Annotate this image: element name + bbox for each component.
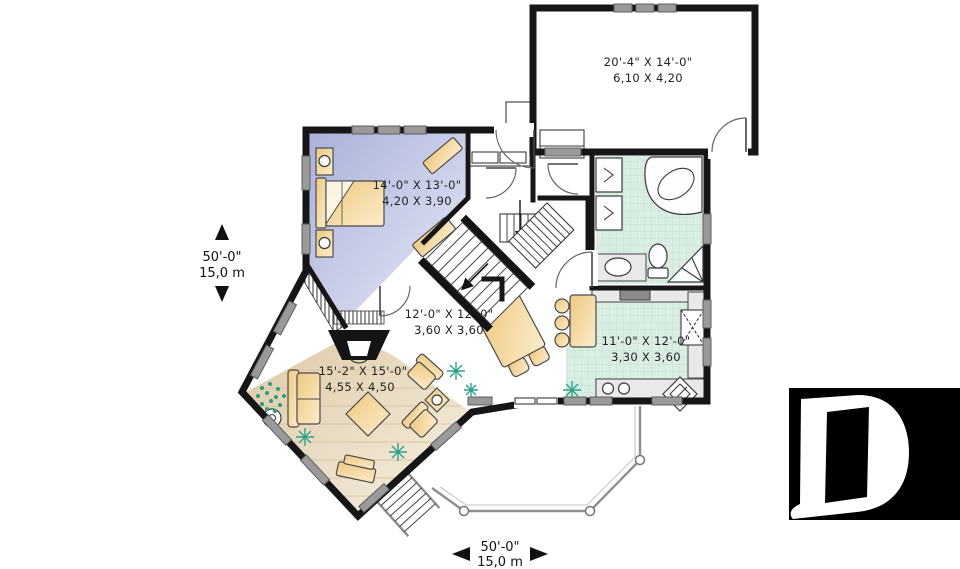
garage-dim-meters: 6,10 X 4,20	[613, 71, 683, 85]
dryer	[596, 196, 622, 230]
living-dim-feet: 15'-2" X 15'-0"	[319, 364, 408, 378]
sink	[605, 258, 631, 276]
stove-burner	[603, 383, 614, 394]
dining-dim-meters: 3,60 X 3,60	[414, 323, 484, 337]
arrow-up-icon	[215, 224, 229, 240]
eating-bar	[570, 295, 596, 347]
toilet	[648, 244, 668, 278]
horizontal-dim-meters: 15,0 m	[477, 555, 523, 569]
stool	[555, 316, 569, 330]
living-dim-meters: 4,55 X 4,50	[325, 380, 395, 394]
builder-logo	[789, 388, 960, 520]
dining-dim-feet: 12'-0" X 12'-0"	[405, 307, 494, 321]
kitchen-dim-meters: 3,30 X 3,60	[611, 350, 681, 364]
horizontal-dim-feet: 50'-0"	[480, 540, 519, 555]
vertical-dim-feet: 50'-0"	[202, 250, 241, 265]
floor-plan-canvas: 20'-4" X 14'-0" 6,10 X 4,20 14'-0" X 13'…	[0, 0, 960, 569]
stove-burner	[619, 383, 630, 394]
arrow-down-icon	[215, 286, 229, 302]
dimension-horizontal: 50'-0" 15,0 m	[452, 540, 548, 569]
dimension-vertical: 50'-0" 15,0 m	[199, 224, 245, 302]
bedroom-dim-meters: 4,20 X 3,90	[382, 194, 452, 208]
vertical-dim-meters: 15,0 m	[199, 266, 245, 281]
bed-headboard	[316, 178, 326, 228]
stool	[555, 299, 569, 313]
stool	[555, 333, 569, 347]
arrow-right-icon	[530, 547, 548, 561]
bedroom-dim-feet: 14'-0" X 13'-0"	[373, 178, 462, 192]
arrow-left-icon	[452, 547, 470, 561]
garage-dim-feet: 20'-4" X 14'-0"	[604, 55, 693, 69]
sofa	[297, 373, 320, 424]
washer	[596, 158, 622, 192]
winder-stair	[509, 203, 574, 268]
kitchen-dim-feet: 11'-0" X 12'-0"	[602, 334, 691, 348]
